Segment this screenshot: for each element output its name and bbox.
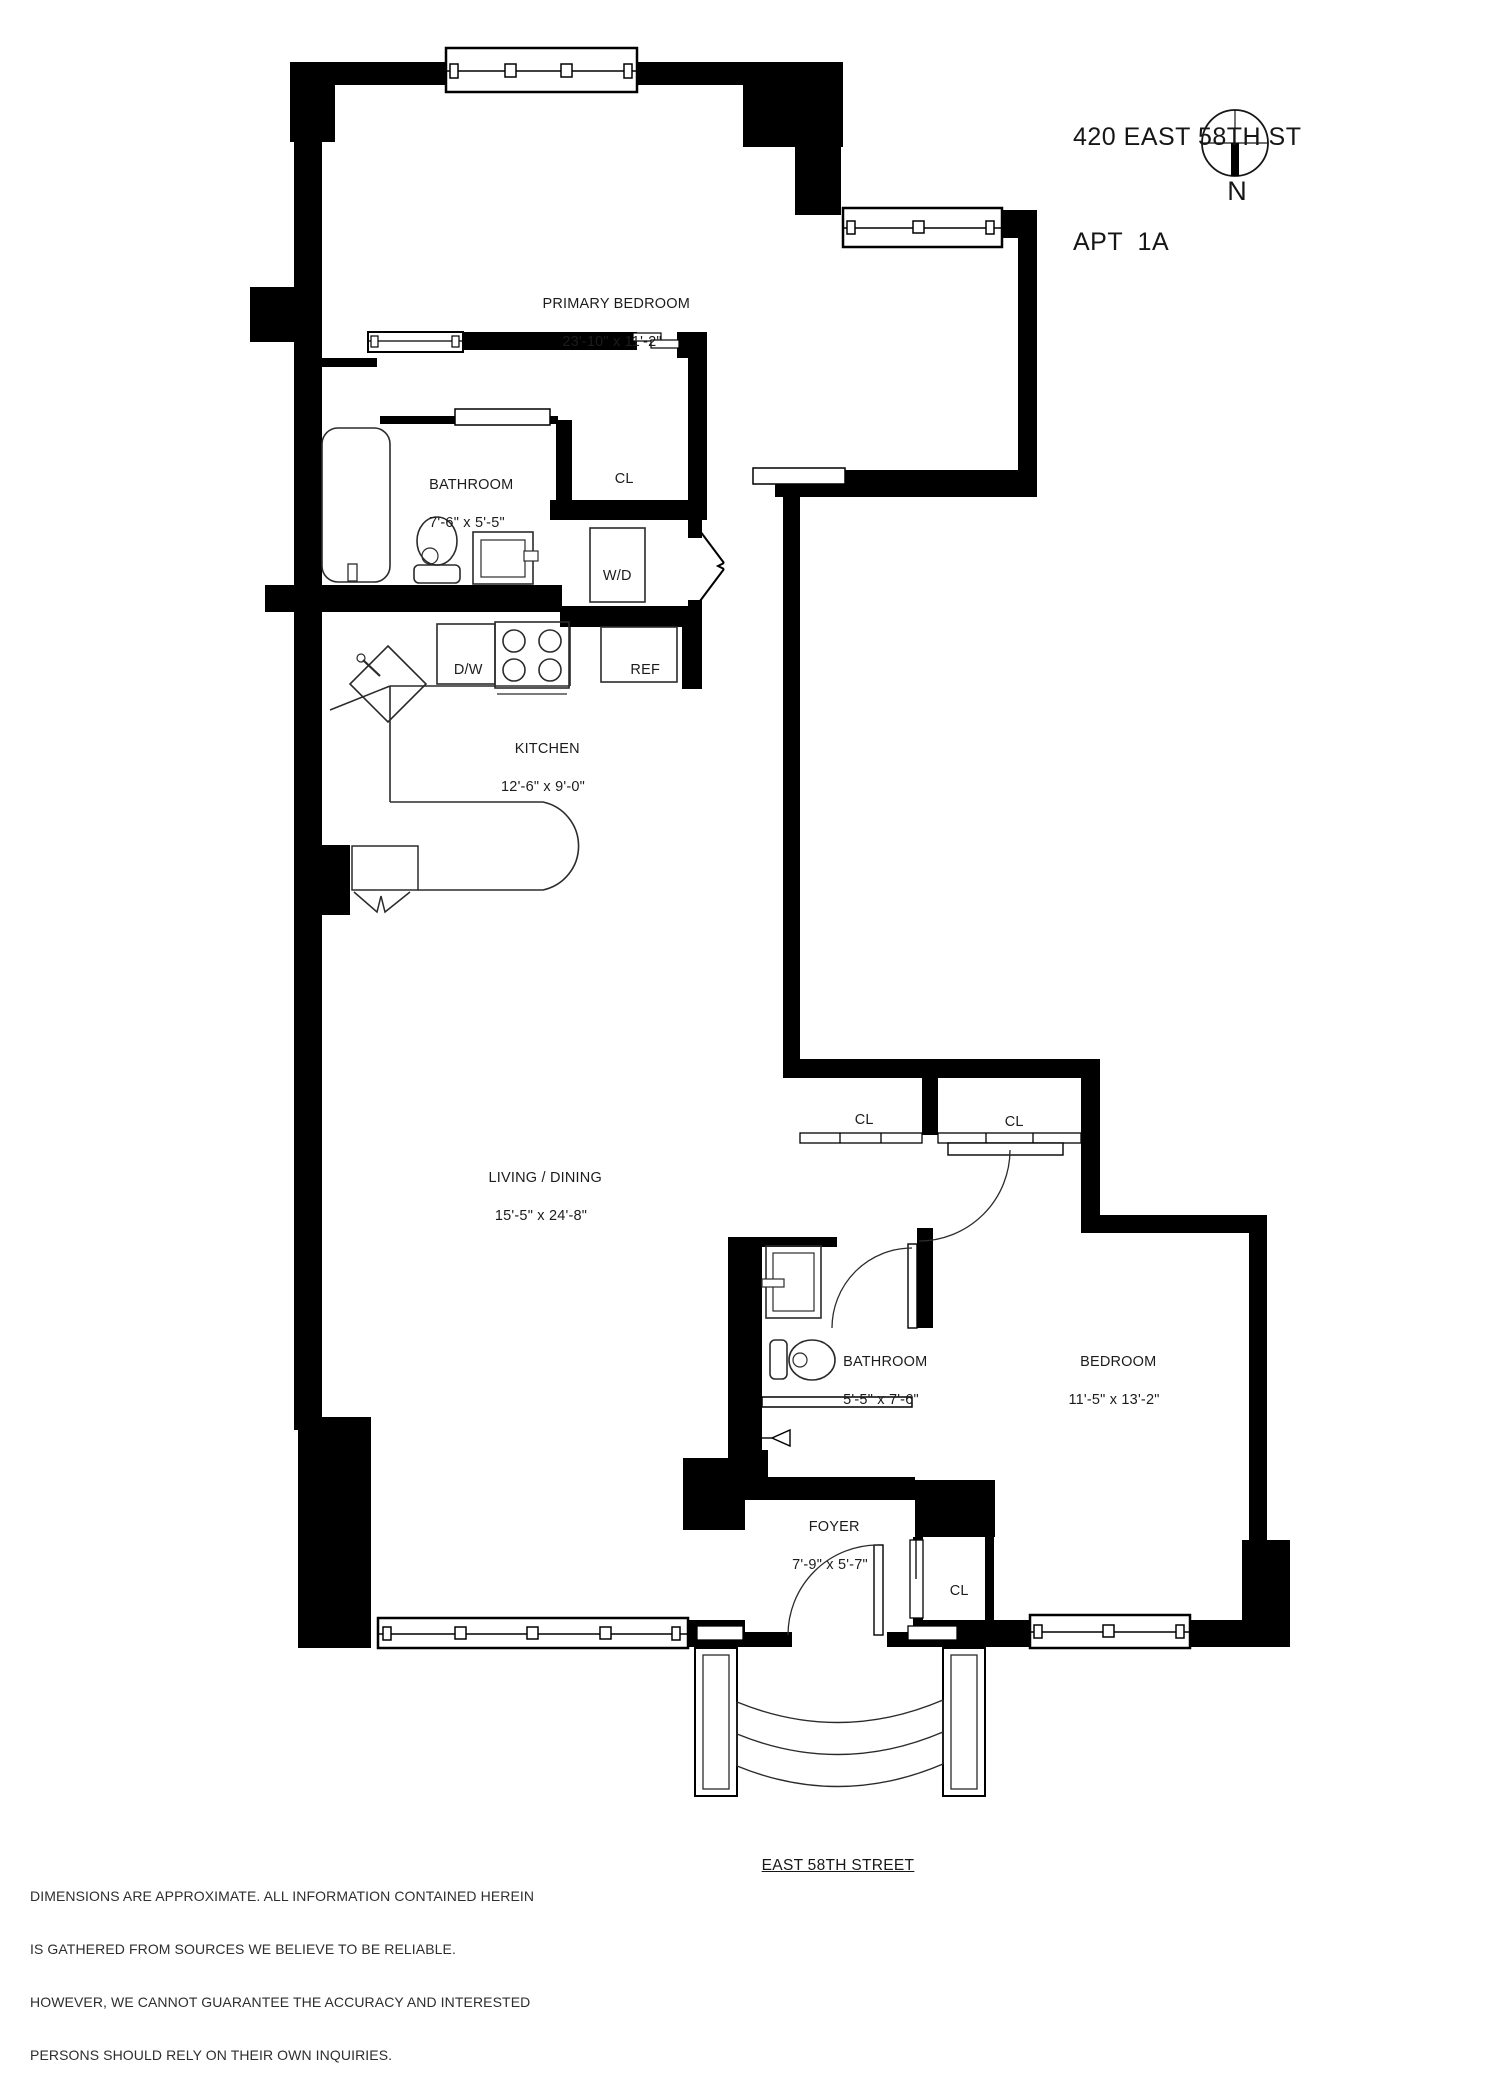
room-label-primary-bedroom: PRIMARY BEDROOM 23'-10" x 11'-2" (534, 276, 690, 371)
entry-pillar-right (943, 1648, 985, 1796)
room-label-living-dining: LIVING / DINING 15'-5" x 24'-8" (480, 1150, 602, 1245)
room-label-closet2: CL (846, 1092, 873, 1130)
entry-threshold-right (908, 1626, 957, 1640)
floor-plan-page: { "header": { "address_line1": "420 EAST… (0, 0, 1500, 1941)
room-label-bathroom1: BATHROOM 7'-6" x 5'-5" (421, 457, 514, 552)
slider-closet4 (910, 1540, 923, 1618)
room-label-foyer: FOYER 7'-9" x 5'-7" (792, 1499, 868, 1594)
shower-icon (762, 1246, 821, 1318)
disclaimer-text: DIMENSIONS ARE APPROXIMATE. ALL INFORMAT… (30, 1853, 534, 2082)
room-label-bedroom: BEDROOM 11'-5" x 13'-2" (1068, 1334, 1159, 1429)
valve-icon (758, 1430, 790, 1446)
window-bathroom (368, 332, 463, 352)
pocket-door-primary-bedroom (753, 468, 845, 484)
window-primary-bedroom-top (446, 48, 637, 92)
window-living-room (378, 1618, 688, 1648)
window-primary-bedroom-right (843, 208, 1002, 247)
window-bedroom (1030, 1615, 1190, 1648)
room-label-closet3: CL (996, 1094, 1023, 1132)
address-line2: APT 1A (1073, 225, 1301, 260)
label-washer-dryer: W/D (594, 548, 631, 586)
compass-north-label: N (1227, 176, 1247, 207)
label-refrigerator: REF (622, 642, 660, 680)
entry-threshold-left (697, 1626, 743, 1640)
door-bathroom2 (832, 1244, 917, 1328)
pocket-door-bathroom (455, 409, 550, 425)
stove-icon (495, 622, 569, 694)
bifold-closet-kitchen (352, 846, 418, 912)
room-label-kitchen: KITCHEN 12'-6" x 9'-0" (501, 721, 585, 816)
corner-sink-icon (350, 646, 426, 722)
disclaimer-line: IS GATHERED FROM SOURCES WE BELIEVE TO B… (30, 1941, 534, 1959)
room-label-closet1: CL (606, 451, 633, 489)
slider-closet2 (800, 1133, 922, 1143)
street-label: EAST 58TH STREET (762, 1857, 915, 1875)
room-label-bathroom2: BATHROOM 5'-5" x 7'-6" (835, 1334, 928, 1429)
room-label-closet4: CL (941, 1563, 968, 1601)
address-line1: 420 EAST 58TH ST (1073, 120, 1301, 155)
curved-steps (737, 1700, 943, 1787)
windows (368, 48, 1190, 1648)
entry-pillar-left (695, 1648, 737, 1796)
address-title: 420 EAST 58TH ST APT 1A (1073, 50, 1301, 295)
slider-closet3 (938, 1133, 1081, 1143)
disclaimer-line: DIMENSIONS ARE APPROXIMATE. ALL INFORMAT… (30, 1888, 534, 1906)
entry-steps (695, 1648, 985, 1796)
door-bedroom (919, 1143, 1063, 1241)
disclaimer-line: HOWEVER, WE CANNOT GUARANTEE THE ACCURAC… (30, 1994, 534, 2012)
toilet2-icon (770, 1340, 835, 1380)
disclaimer-line: PERSONS SHOULD RELY ON THEIR OWN INQUIRI… (30, 2047, 534, 2065)
label-dishwasher: D/W (445, 642, 482, 680)
bathtub-icon (322, 428, 390, 582)
bifold-doors-wd (697, 527, 724, 605)
